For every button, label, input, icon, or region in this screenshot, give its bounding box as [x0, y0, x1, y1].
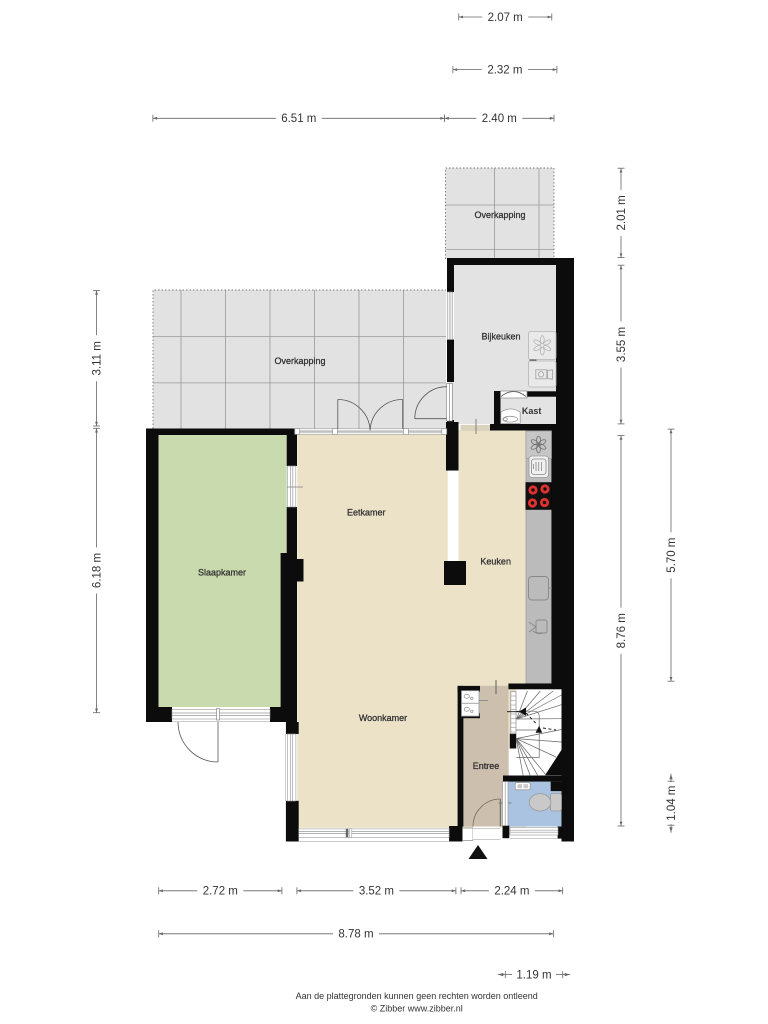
- svg-text:© Zibber www.zibber.nl: © Zibber www.zibber.nl: [371, 1004, 463, 1014]
- svg-text:1.04 m: 1.04 m: [666, 786, 678, 821]
- svg-text:2.01 m: 2.01 m: [616, 195, 628, 230]
- svg-text:2.72 m: 2.72 m: [203, 886, 238, 898]
- svg-text:1.19 m: 1.19 m: [516, 970, 551, 982]
- svg-text:Eetkamer: Eetkamer: [347, 508, 386, 518]
- svg-text:6.51 m: 6.51 m: [281, 113, 316, 125]
- svg-text:Woonkamer: Woonkamer: [359, 713, 407, 723]
- svg-text:Entree: Entree: [473, 761, 500, 771]
- svg-text:Overkapping: Overkapping: [274, 356, 325, 366]
- svg-text:Aan de plattegronden kunnen ge: Aan de plattegronden kunnen geen rechten…: [296, 991, 538, 1001]
- svg-text:2.24 m: 2.24 m: [494, 886, 529, 898]
- svg-text:6.18 m: 6.18 m: [91, 553, 103, 588]
- svg-text:Kast: Kast: [522, 406, 542, 416]
- svg-text:Overkapping: Overkapping: [474, 210, 525, 220]
- svg-text:3.11 m: 3.11 m: [91, 341, 103, 375]
- svg-text:Slaapkamer: Slaapkamer: [198, 568, 246, 578]
- svg-text:8.78 m: 8.78 m: [338, 929, 373, 941]
- svg-text:3.55 m: 3.55 m: [616, 327, 628, 362]
- svg-text:8.76 m: 8.76 m: [616, 613, 628, 648]
- svg-text:5.70 m: 5.70 m: [666, 538, 678, 573]
- svg-text:Keuken: Keuken: [480, 557, 511, 567]
- svg-text:3.52 m: 3.52 m: [359, 886, 394, 898]
- svg-text:Bijkeuken: Bijkeuken: [481, 332, 520, 342]
- svg-text:2.32 m: 2.32 m: [487, 65, 522, 77]
- svg-text:2.40 m: 2.40 m: [482, 113, 517, 125]
- svg-text:2.07 m: 2.07 m: [488, 12, 523, 24]
